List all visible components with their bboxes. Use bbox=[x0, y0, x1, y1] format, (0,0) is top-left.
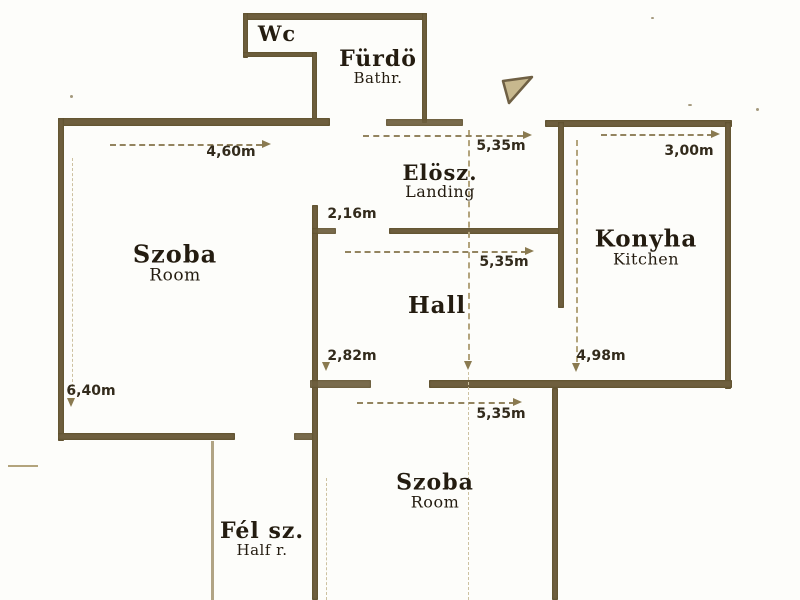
dimension-line-hall-width bbox=[345, 251, 527, 253]
wall-landing-hall bbox=[389, 228, 563, 234]
dimension-line-kitchen-vertical bbox=[576, 140, 578, 362]
room-label-wc: Wc bbox=[258, 23, 296, 45]
scan-speck bbox=[688, 104, 692, 106]
room-label-room-bottom: Szoba Room bbox=[396, 471, 474, 511]
room-name: Szoba bbox=[396, 471, 474, 494]
dimension-line-kitchen-width bbox=[601, 134, 713, 136]
dimension-label-kitchen-depth: 4,98m bbox=[576, 348, 625, 364]
room-name: Hall bbox=[408, 294, 466, 318]
floor-plan: Wc Fürdö Bathr. Elösz. Landing Szoba Roo… bbox=[0, 0, 800, 600]
dimension-label-room-bottom-width: 5,35m bbox=[476, 406, 525, 422]
room-name: Konyha bbox=[595, 228, 698, 252]
dimension-arrow-room-left-width bbox=[262, 140, 271, 148]
room-name: Elösz. bbox=[402, 162, 477, 184]
room-label-room-left: Szoba Room bbox=[133, 243, 217, 286]
room-name: Szoba bbox=[133, 243, 217, 268]
wall-bottom-main bbox=[429, 380, 732, 388]
dimension-label-kitchen-width: 3,00m bbox=[664, 143, 713, 159]
wall-room-bottom-right bbox=[552, 388, 558, 600]
room-name: Wc bbox=[258, 23, 296, 45]
line-room-bottom-left bbox=[326, 478, 327, 600]
wall-kitchen-top bbox=[545, 120, 732, 127]
scan-speck bbox=[651, 17, 654, 19]
room-name-en: Bathr. bbox=[339, 71, 417, 87]
wall-hall-left bbox=[312, 205, 318, 600]
wall-kitchen-left bbox=[558, 122, 564, 308]
room-name-en: Kitchen bbox=[595, 252, 698, 269]
scan-speck bbox=[756, 108, 759, 111]
dimension-arrow-room-left-depth bbox=[67, 398, 75, 407]
room-label-half-room: Fél sz. Half r. bbox=[220, 520, 304, 558]
wall-hall-bottom-stub bbox=[310, 380, 371, 388]
room-name-en: Room bbox=[396, 494, 474, 511]
wall-wc-bottom bbox=[243, 52, 317, 57]
dimension-label-hall-width: 5,35m bbox=[479, 254, 528, 270]
dimension-arrow-hall-vertical bbox=[464, 361, 472, 370]
north-arrow-icon bbox=[500, 74, 538, 108]
line-half-room-left bbox=[211, 441, 214, 600]
room-name-en: Landing bbox=[402, 184, 477, 201]
dimension-line-room-left-vertical bbox=[72, 158, 73, 392]
wall-landing-stub bbox=[312, 228, 336, 234]
room-name: Fürdö bbox=[339, 48, 417, 71]
room-name-en: Half r. bbox=[220, 543, 304, 559]
dimension-label-landing-depth: 2,16m bbox=[327, 206, 376, 222]
wall-kitchen-right bbox=[725, 122, 731, 389]
room-name-en: Room bbox=[133, 268, 217, 286]
wall-outer-left bbox=[58, 118, 64, 441]
dimension-label-room-left-width: 4,60m bbox=[206, 144, 255, 160]
dimension-arrow-room-bottom-width bbox=[513, 398, 522, 406]
wall-wc-bath-top bbox=[243, 13, 427, 20]
wall-bath-left bbox=[312, 52, 317, 125]
scan-stray-mark bbox=[8, 465, 38, 467]
dimension-label-hall-depth: 2,82m bbox=[327, 348, 376, 364]
dimension-line-landing-width bbox=[363, 135, 523, 137]
room-label-kitchen: Konyha Kitchen bbox=[595, 228, 698, 269]
wall-room-left-bottom bbox=[58, 433, 235, 440]
wall-bath-right bbox=[422, 13, 427, 123]
dimension-line-room-bottom-width bbox=[357, 402, 515, 404]
dimension-arrow-kitchen-width bbox=[711, 130, 720, 138]
wall-top-left bbox=[58, 118, 330, 126]
wall-top-middle bbox=[386, 119, 463, 126]
room-label-landing: Elösz. Landing bbox=[402, 162, 477, 200]
room-label-hall: Hall bbox=[408, 294, 466, 318]
room-name: Fél sz. bbox=[220, 520, 304, 543]
dimension-label-landing-width: 5,35m bbox=[476, 138, 525, 154]
dimension-arrow-kitchen-vertical bbox=[572, 363, 580, 372]
scan-speck bbox=[70, 95, 73, 98]
dimension-label-room-left-depth: 6,40m bbox=[66, 383, 115, 399]
room-label-bathroom: Fürdö Bathr. bbox=[339, 48, 417, 86]
